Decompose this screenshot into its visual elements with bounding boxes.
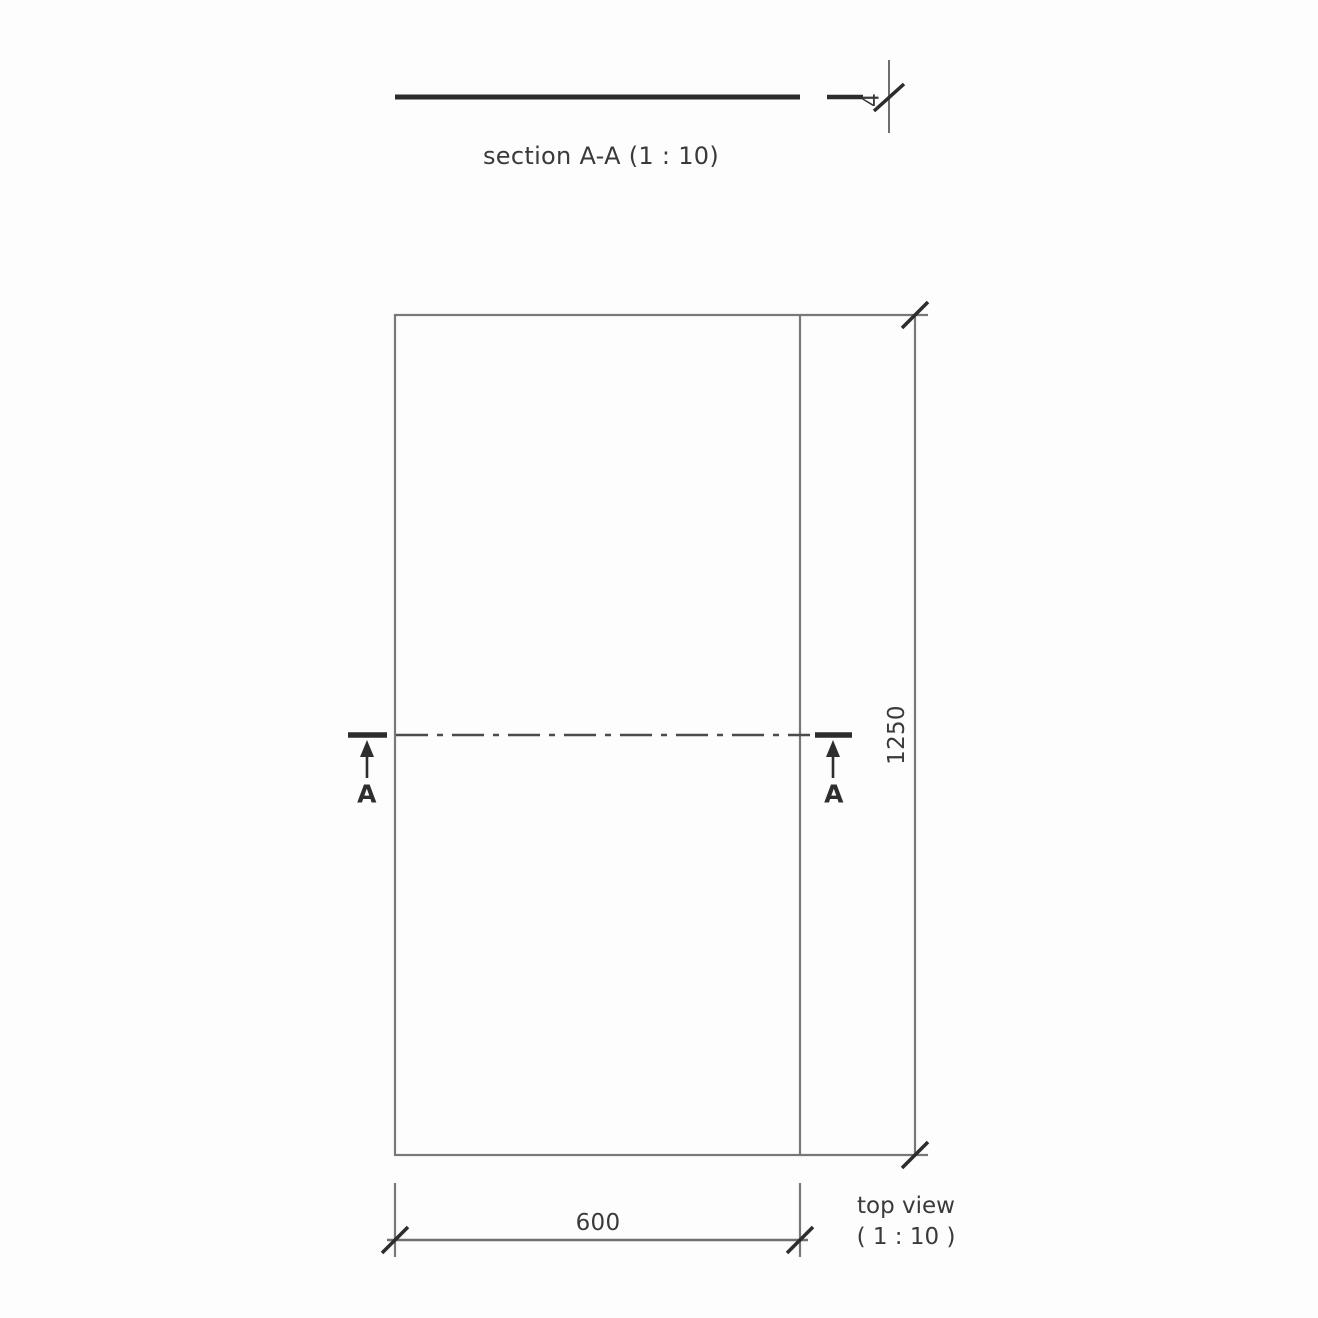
section-view-linework [395, 60, 904, 133]
drawing-linework [0, 0, 1318, 1318]
drawing-sheet: section A-A (1 : 10) 4 1250 A A 600 top … [0, 0, 1318, 1318]
section-arrow-left-icon [360, 740, 374, 778]
cut-marker-label-left: A [357, 780, 377, 809]
height-dimension-value: 1250 [884, 705, 910, 765]
cut-marker-label-right: A [824, 780, 844, 809]
section-arrow-right-head [826, 740, 840, 757]
width-dimension-value: 600 [576, 1210, 621, 1236]
section-view-title: section A-A (1 : 10) [483, 142, 719, 170]
top-view-caption-line1: top view [857, 1191, 956, 1222]
top-view-caption-line2: ( 1 : 10 ) [857, 1222, 956, 1253]
section-arrow-left-head [360, 740, 374, 757]
section-arrow-right-icon [826, 740, 840, 778]
thickness-dimension-value: 4 [860, 93, 885, 107]
top-view-caption: top view ( 1 : 10 ) [857, 1191, 956, 1253]
